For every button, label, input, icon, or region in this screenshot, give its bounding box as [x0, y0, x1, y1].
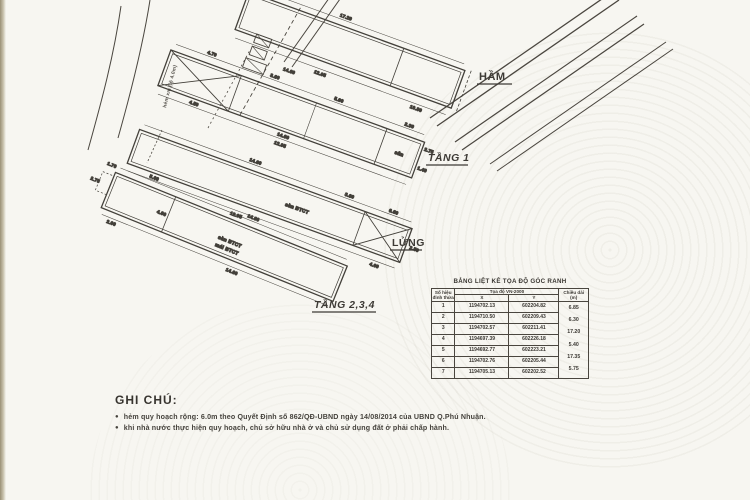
segment-length: 5.40 [559, 343, 588, 349]
coord-x: 1194702.57 [455, 323, 509, 334]
dimension: 14.60 [282, 66, 296, 75]
coord-y: 602205.44 [509, 356, 559, 367]
label-lung: LỬNG [392, 236, 425, 249]
coord-y: 602204.82 [509, 301, 559, 312]
segment-length: 6.85 [559, 306, 588, 312]
coord-x: 1194697.39 [455, 334, 509, 345]
segment-length: 6.30 [559, 318, 588, 324]
dimension: 4.70 [207, 50, 218, 58]
coord-y: 602211.41 [509, 323, 559, 334]
point-id: 5 [432, 345, 455, 356]
segment-length: 17.35 [559, 355, 588, 361]
dimension: 2.00 [106, 219, 117, 227]
point-id: 4 [432, 334, 455, 345]
segment-length: 5.75 [559, 367, 588, 373]
dimension: 3.60 [344, 192, 355, 200]
length-column: 6.85 6.30 17.20 5.40 17.35 5.75 [559, 301, 589, 378]
coord-x: 1194702.13 [455, 301, 509, 312]
dimension: 14.60 [247, 213, 261, 222]
note-text: khi nhà nước thực hiện quy hoạch, chủ sở… [124, 423, 449, 434]
dimension: 14.60 [225, 267, 239, 276]
dimension: 4.00 [369, 261, 380, 269]
point-id: 7 [432, 367, 455, 378]
bullet-icon: ● [115, 412, 119, 423]
dimension: 14.60 [249, 157, 263, 166]
point-id: 2 [432, 312, 455, 323]
coord-x: 1194705.13 [455, 367, 509, 378]
dimension: 4.60 [156, 209, 167, 217]
notes-heading: GHI CHÚ: [115, 393, 675, 407]
table-row: 1 1194702.13 602204.82 6.85 6.30 17.20 5… [432, 301, 589, 312]
coord-x: 1194710.50 [455, 312, 509, 323]
slab-note: sàn BTCT [284, 202, 309, 216]
label-ham: HẦM [479, 70, 506, 83]
note-item: ● hẻm quy hoạch rộng: 6.0m theo Quyết Đị… [115, 412, 675, 423]
table-title: BẢNG LIỆT KÊ TỌA ĐỘ GÓC RANH [431, 278, 589, 285]
plan-tang234: sàn BTCT mái BTCT 1.70 2.75 5.00 14.60 4… [77, 153, 352, 313]
segment-length: 17.20 [559, 330, 588, 336]
dimension: 1.40 [417, 166, 428, 174]
dimension: 12.95 [273, 140, 287, 149]
annex-label: sân [394, 150, 405, 159]
coord-x: 1194702.76 [455, 356, 509, 367]
scanned-drawing-sheet: hẻm xm (lộ 4.0m) 17.20 3.40 12.95 10.80 … [0, 0, 750, 500]
col-header-point: Số hiệu đỉnh thửa [432, 289, 455, 302]
dimension: 17.20 [339, 13, 353, 22]
dimension: 6.60 [388, 208, 399, 216]
coord-y: 602223.21 [509, 345, 559, 356]
coord-y: 602202.52 [509, 367, 559, 378]
dimension: 5.00 [333, 96, 344, 104]
dimension: 2.75 [90, 176, 101, 184]
note-item: ● khi nhà nước thực hiện quy hoạch, chủ … [115, 423, 675, 434]
point-id: 3 [432, 323, 455, 334]
label-tang1: TẦNG 1 [428, 151, 470, 164]
coordinate-table: BẢNG LIỆT KÊ TỌA ĐỘ GÓC RANH Số hiệu đỉn… [431, 278, 589, 379]
bullet-icon: ● [115, 423, 119, 434]
street-label: hẻm xm (lộ 4.0m) [162, 64, 179, 108]
dimension: 1.70 [107, 161, 118, 169]
coord-y: 602209.43 [509, 312, 559, 323]
point-id: 6 [432, 356, 455, 367]
plan-tang1: sân 4.70 3.60 5.00 2.30 14.60 12.95 2.75… [152, 38, 440, 197]
label-tang234: TẦNG 2,3,4 [314, 298, 375, 311]
note-text: hẻm quy hoạch rộng: 6.0m theo Quyết Định… [124, 412, 486, 423]
dimension: 2.30 [404, 122, 415, 130]
notes-section: GHI CHÚ: ● hẻm quy hoạch rộng: 6.0m theo… [115, 393, 675, 434]
coord-x: 1194692.77 [455, 345, 509, 356]
coord-y: 602226.18 [509, 334, 559, 345]
col-header-length: Chiều dài (m) [559, 289, 589, 302]
dimension: 3.60 [270, 73, 281, 81]
point-id: 1 [432, 301, 455, 312]
